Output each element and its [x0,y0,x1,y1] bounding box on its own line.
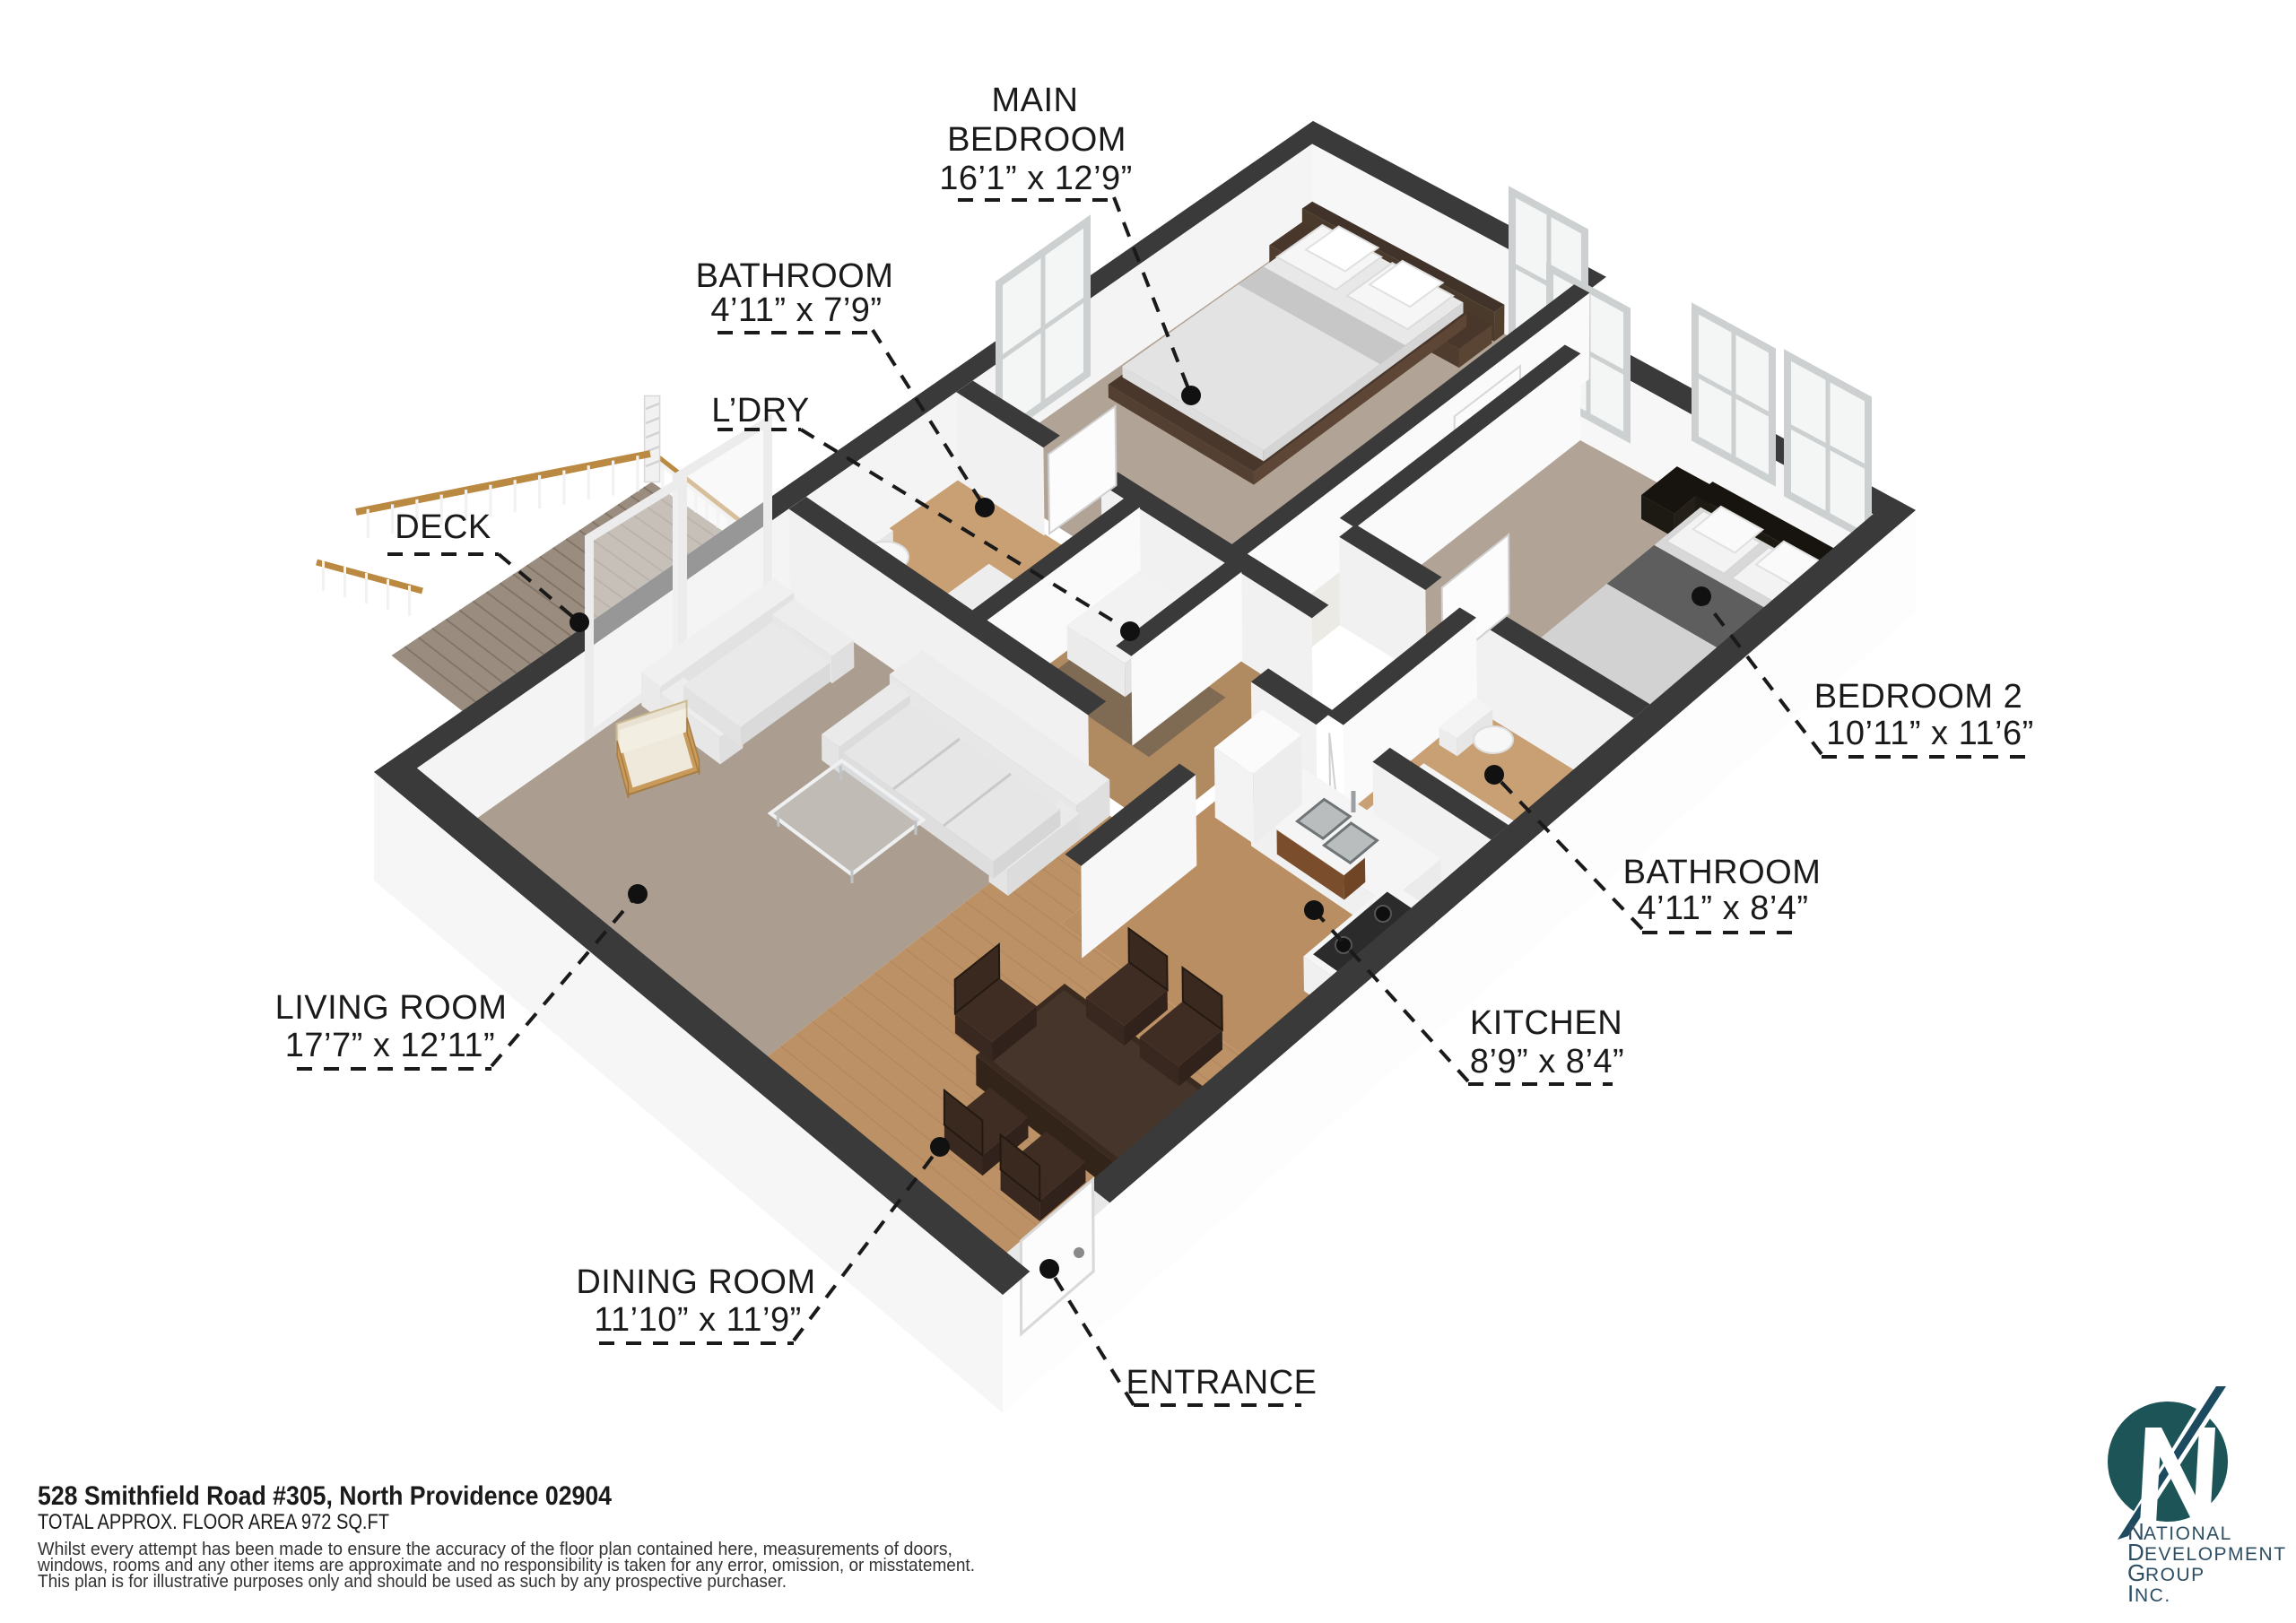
svg-text:4’11” x 7’9”: 4’11” x 7’9” [710,291,882,329]
svg-text:BATHROOM: BATHROOM [1623,854,1822,891]
svg-text:EVELOPMENT: EVELOPMENT [2144,1544,2287,1565]
svg-text:NC.: NC. [2135,1585,2171,1606]
svg-text:BATHROOM: BATHROOM [696,257,894,295]
svg-text:LIVING ROOM: LIVING ROOM [275,989,508,1027]
svg-text:L’DRY: L’DRY [711,392,810,430]
svg-text:TOTAL APPROX. FLOOR AREA 972 S: TOTAL APPROX. FLOOR AREA 972 SQ.FT [38,1510,389,1534]
svg-text:10’11” x 11’6”: 10’11” x 11’6” [1826,715,2034,752]
svg-text:ATIONAL: ATIONAL [2144,1523,2232,1544]
svg-text:DECK: DECK [395,508,491,546]
svg-text:11’10” x 11’9”: 11’10” x 11’9” [594,1301,802,1339]
svg-text:ROUP: ROUP [2145,1565,2205,1585]
svg-text:ENTRANCE: ENTRANCE [1126,1364,1317,1402]
svg-text:8’9” x 8’4”: 8’9” x 8’4” [1470,1043,1624,1081]
svg-text:BEDROOM: BEDROOM [947,121,1126,159]
svg-text:This plan is for illustrative: This plan is for illustrative purposes o… [38,1572,787,1592]
svg-text:I: I [2127,1580,2135,1607]
svg-text:528 Smithfield Road #305, Nort: 528 Smithfield Road #305, North Providen… [38,1481,612,1511]
svg-text:4’11” x 8’4”: 4’11” x 8’4” [1637,890,1808,927]
svg-text:17’7” x 12’11”: 17’7” x 12’11” [285,1027,495,1064]
svg-text:KITCHEN: KITCHEN [1470,1004,1622,1042]
svg-text:BEDROOM 2: BEDROOM 2 [1814,678,2023,716]
svg-text:16’1” x 12’9”: 16’1” x 12’9” [939,160,1133,197]
svg-text:MAIN: MAIN [992,82,1079,119]
svg-text:DINING ROOM: DINING ROOM [576,1263,815,1301]
